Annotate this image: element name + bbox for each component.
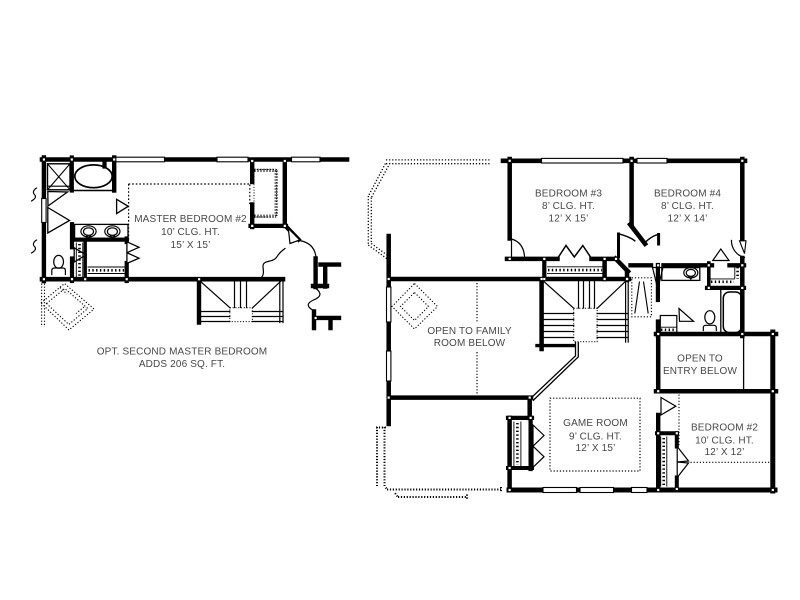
svg-text:12’ X 14’: 12’ X 14’ bbox=[668, 213, 708, 224]
svg-text:10’ CLG. HT.: 10’ CLG. HT. bbox=[695, 435, 754, 446]
svg-text:8’ CLG. HT.: 8’ CLG. HT. bbox=[661, 201, 714, 212]
svg-text:ROOM BELOW: ROOM BELOW bbox=[434, 338, 506, 349]
svg-text:12’ X 15’: 12’ X 15’ bbox=[549, 213, 589, 224]
svg-text:OPEN TO: OPEN TO bbox=[677, 353, 723, 364]
svg-text:GAME ROOM: GAME ROOM bbox=[563, 418, 628, 429]
svg-text:ADDS 206 SQ. FT.: ADDS 206 SQ. FT. bbox=[139, 359, 225, 370]
svg-text:12’ X 15’: 12’ X 15’ bbox=[576, 443, 616, 454]
svg-text:8’ CLG. HT.: 8’ CLG. HT. bbox=[542, 201, 595, 212]
svg-text:12’ X 12’: 12’ X 12’ bbox=[705, 447, 745, 458]
svg-text:OPEN TO FAMILY: OPEN TO FAMILY bbox=[427, 326, 512, 337]
svg-text:10’ CLG. HT.: 10’ CLG. HT. bbox=[161, 227, 220, 238]
svg-text:OPT. SECOND MASTER BEDROOM: OPT. SECOND MASTER BEDROOM bbox=[97, 347, 268, 358]
svg-text:15’ X 15’: 15’ X 15’ bbox=[171, 240, 211, 251]
svg-text:BEDROOM #4: BEDROOM #4 bbox=[654, 188, 721, 199]
svg-text:ENTRY BELOW: ENTRY BELOW bbox=[663, 366, 737, 377]
svg-text:9’ CLG. HT.: 9’ CLG. HT. bbox=[569, 431, 622, 442]
svg-text:BEDROOM #3: BEDROOM #3 bbox=[535, 188, 602, 199]
svg-text:BEDROOM #2: BEDROOM #2 bbox=[691, 422, 758, 433]
svg-text:MASTER BEDROOM #2: MASTER BEDROOM #2 bbox=[134, 214, 247, 225]
